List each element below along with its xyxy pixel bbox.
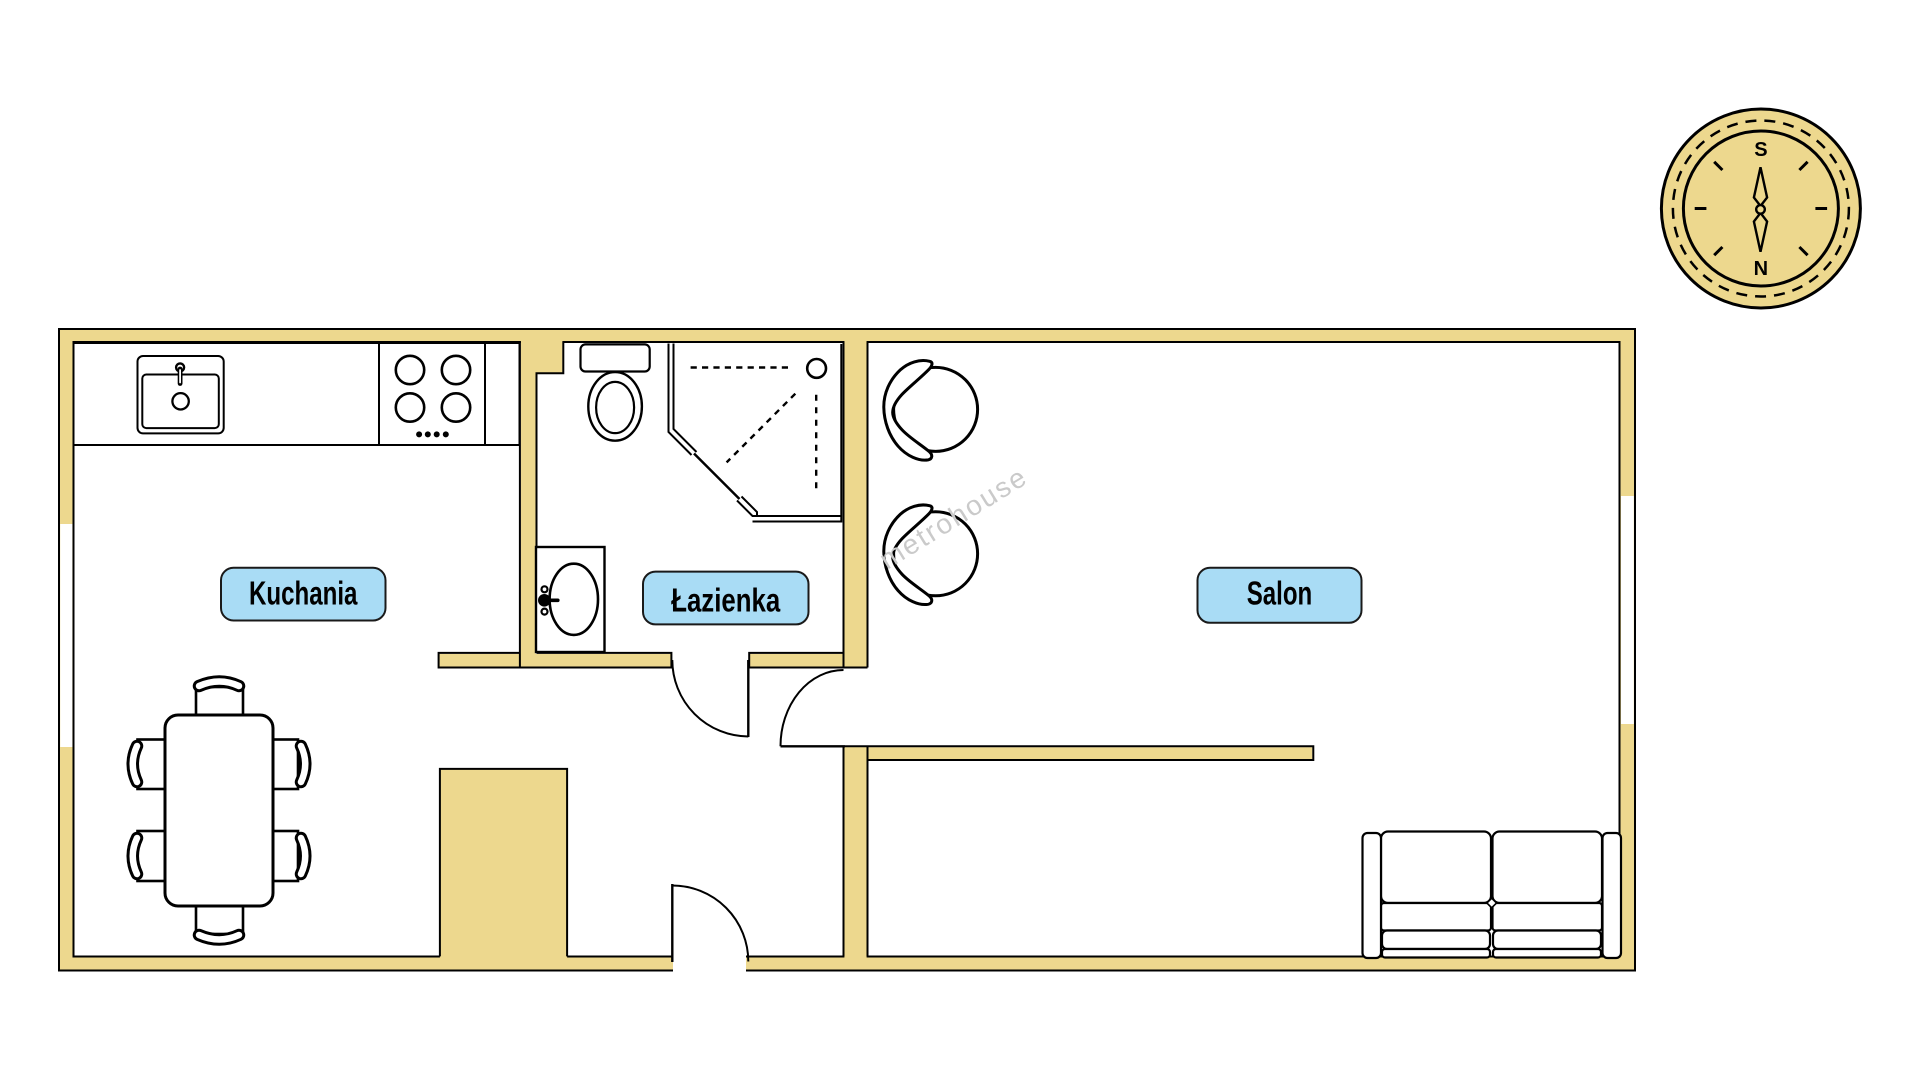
svg-text:Kuchania: Kuchania	[249, 574, 358, 611]
svg-text:S: S	[1754, 139, 1767, 161]
svg-text:Salon: Salon	[1247, 574, 1313, 611]
svg-text:N: N	[1754, 258, 1768, 280]
svg-text:Łazienka: Łazienka	[671, 581, 780, 618]
